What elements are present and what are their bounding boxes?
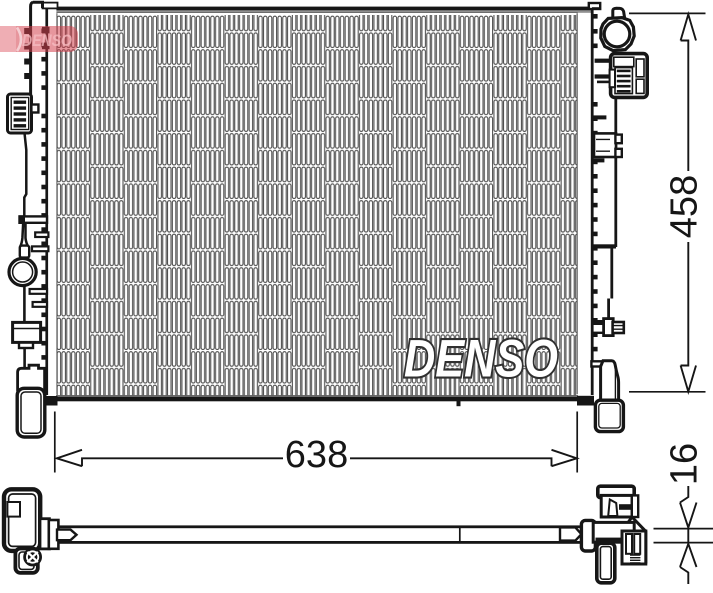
svg-text:16: 16 xyxy=(664,443,706,485)
svg-text:DENSO: DENSO xyxy=(404,330,558,389)
svg-text:458: 458 xyxy=(664,175,706,238)
svg-text:DENSO: DENSO xyxy=(22,31,72,50)
svg-text:638: 638 xyxy=(285,434,348,476)
